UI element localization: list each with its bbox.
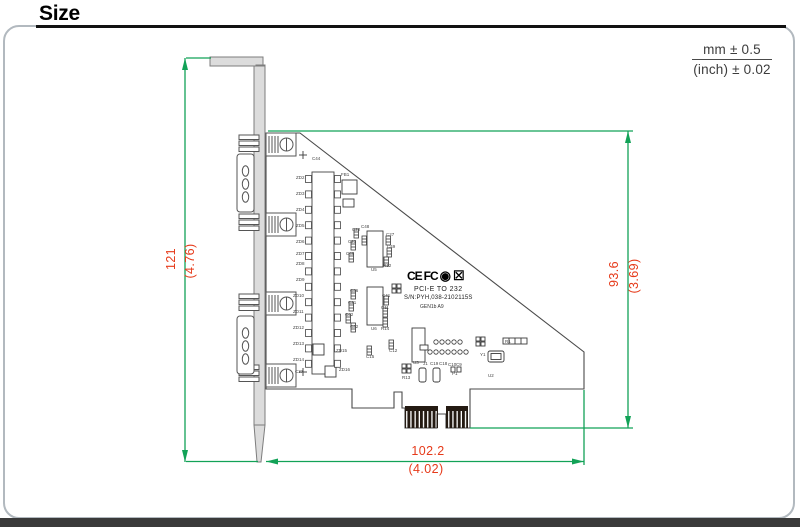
standoff-4 xyxy=(266,364,296,387)
silkscreen-label: C36 xyxy=(350,289,358,294)
jackscrew xyxy=(239,214,259,231)
weee-logo: ☒ xyxy=(453,268,465,284)
silkscreen-label: ZD2 xyxy=(296,176,305,181)
dim-board-height-inch: (3.69) xyxy=(627,258,641,293)
certification-logos: CEFC◉☒ xyxy=(407,268,465,284)
fcc-logo: FC xyxy=(424,269,438,283)
silkscreen-label: U5 xyxy=(371,268,377,273)
db9-port-2 xyxy=(237,316,254,374)
silkscreen-label: ZD16 xyxy=(339,368,350,373)
size-diagram-page: Size mm ± 0.5 (inch) ± 0.02 xyxy=(0,0,800,527)
silkscreen-label: ZD14 xyxy=(293,358,304,363)
silkscreen-label: C21 xyxy=(348,301,356,306)
silkscreen-label: ZD3 xyxy=(296,192,305,197)
silkscreen-label: C42 xyxy=(345,313,353,318)
silkscreen-label: FB1 xyxy=(341,173,349,178)
dim-bracket-height-mm: 121 xyxy=(164,248,178,270)
silkscreen-label: P1 xyxy=(452,372,458,377)
silkscreen-label: C23 xyxy=(348,240,356,245)
silkscreen-label: C27 xyxy=(386,233,394,238)
standoff-2 xyxy=(266,213,296,236)
mounting-bracket xyxy=(210,57,265,462)
dim-bracket-height-inch: (4.76) xyxy=(183,243,197,278)
silkscreen-label: R14 xyxy=(381,327,389,332)
silkscreen-label: C22 xyxy=(352,228,360,233)
dim-board-width-mm: 102.2 xyxy=(411,444,444,458)
silkscreen-label: R12 xyxy=(383,264,391,269)
silkscreen-label: C12 xyxy=(389,349,397,354)
card-drawing xyxy=(0,0,800,527)
silkscreen-label: C11 xyxy=(381,306,389,311)
silkscreen-label: R1 xyxy=(505,340,511,345)
silkscreen-label: ZD6 xyxy=(296,240,305,245)
standoff-1 xyxy=(266,133,296,156)
silkscreen-label: C49 xyxy=(387,245,395,250)
board-model-text: PCI-E TO 232 xyxy=(414,286,463,293)
silkscreen-label: ZD7 xyxy=(296,252,305,257)
board-serial-text: S/N:PYH,038-2102115S xyxy=(404,295,473,301)
silkscreen-label: C48 xyxy=(361,225,369,230)
silkscreen-label: ZD12 xyxy=(293,326,304,331)
pcie-edge-connector xyxy=(405,406,468,428)
silkscreen-label: C9 xyxy=(456,363,462,368)
silkscreen-label: ZD10 xyxy=(293,294,304,299)
board-rev-text: GEN1b A9 xyxy=(420,304,444,310)
standoff-3 xyxy=(266,292,296,315)
silkscreen-label: C18 xyxy=(439,362,447,367)
silkscreen-label: R13 xyxy=(402,376,410,381)
ce-logo: CE xyxy=(407,269,422,283)
dim-board-width-inch: (4.02) xyxy=(408,462,443,476)
silkscreen-label: C41 xyxy=(382,294,390,299)
dim-board-height-mm: 93.6 xyxy=(607,261,621,287)
silkscreen-label: U3 xyxy=(413,361,419,366)
silkscreen-label: C37 xyxy=(295,370,303,375)
silkscreen-label: ZD8 xyxy=(296,262,305,267)
silkscreen-label: ZD13 xyxy=(293,342,304,347)
jackscrew xyxy=(239,135,259,152)
silkscreen-label: C15 xyxy=(366,355,374,360)
silkscreen-label: U2 xyxy=(488,374,494,379)
db9-port-1 xyxy=(237,154,254,212)
silkscreen-label: C46 xyxy=(346,252,354,257)
silkscreen-label: ZD15 xyxy=(336,349,347,354)
silkscreen-label: ZD5 xyxy=(296,224,305,229)
silkscreen-label: C32 xyxy=(350,325,358,330)
bottom-border-band xyxy=(0,518,800,527)
silkscreen-label: C19 xyxy=(430,362,438,367)
silkscreen-label: J1 xyxy=(423,362,428,367)
silkscreen-label: U6 xyxy=(371,327,377,332)
silkscreen-label: Y1 xyxy=(480,353,486,358)
silkscreen-label: C44 xyxy=(312,157,320,162)
silkscreen-label: ZD11 xyxy=(293,310,304,315)
silkscreen-label: ZD9 xyxy=(296,278,305,283)
silkscreen-label: ZD4 xyxy=(296,208,305,213)
jackscrew xyxy=(239,294,259,311)
rohs-logo: ◉ xyxy=(440,268,451,284)
